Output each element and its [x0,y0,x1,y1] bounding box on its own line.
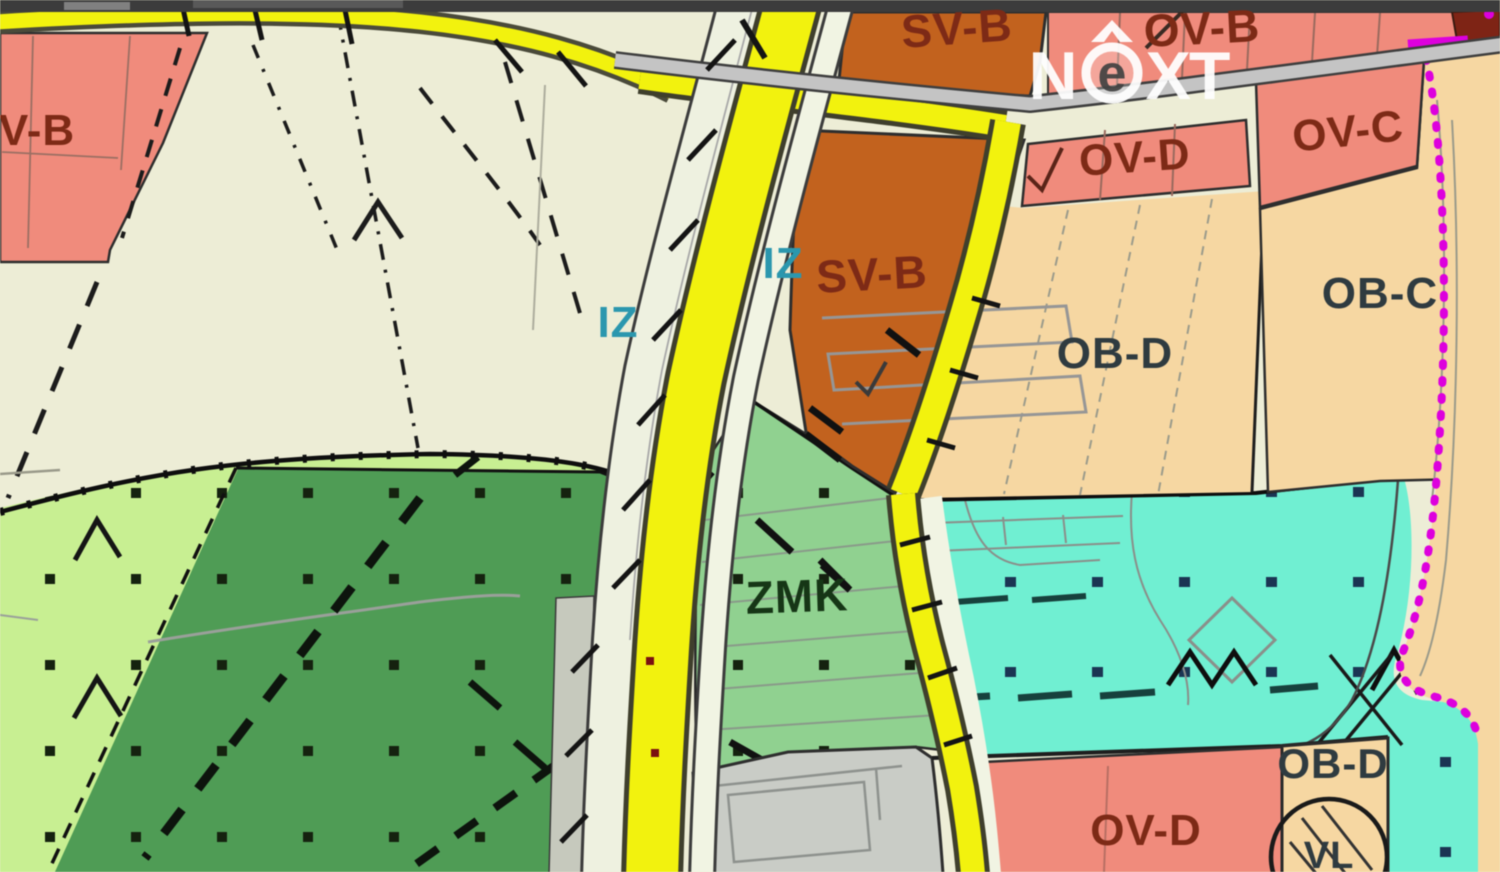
label-ov-b-left: V-B [0,106,75,155]
zoning-map-screenshot: V-B SV-B OV-B OV-D OV-C OB-D OB-C IZ IZ … [0,0,1500,872]
label-vl: VL [1304,835,1355,872]
label-iz-left: IZ [597,298,638,347]
label-ob-c: OB-C [1322,269,1438,318]
watermark-letter-e: e [1098,45,1127,103]
label-iz-right: IZ [762,239,803,288]
window-top-bar [0,0,1500,12]
label-sv-b-mid: SV-B [815,245,929,303]
label-sv-b-top: SV-B [899,0,1014,58]
zoning-map-canvas[interactable]: V-B SV-B OV-B OV-D OV-C OB-D OB-C IZ IZ … [0,0,1500,872]
label-zmk: ZMK [745,568,849,624]
zone-gray-builtup [693,747,943,872]
label-ov-d-top: OV-D [1077,129,1192,186]
label-ob-d-bottom: OB-D [1277,740,1388,787]
watermark-letters-xt: XT [1146,38,1230,114]
watermark-letter-n: N [1028,38,1077,114]
label-ob-d-main: OB-D [1057,329,1173,378]
label-ov-d-bottom: OV-D [1090,806,1202,855]
